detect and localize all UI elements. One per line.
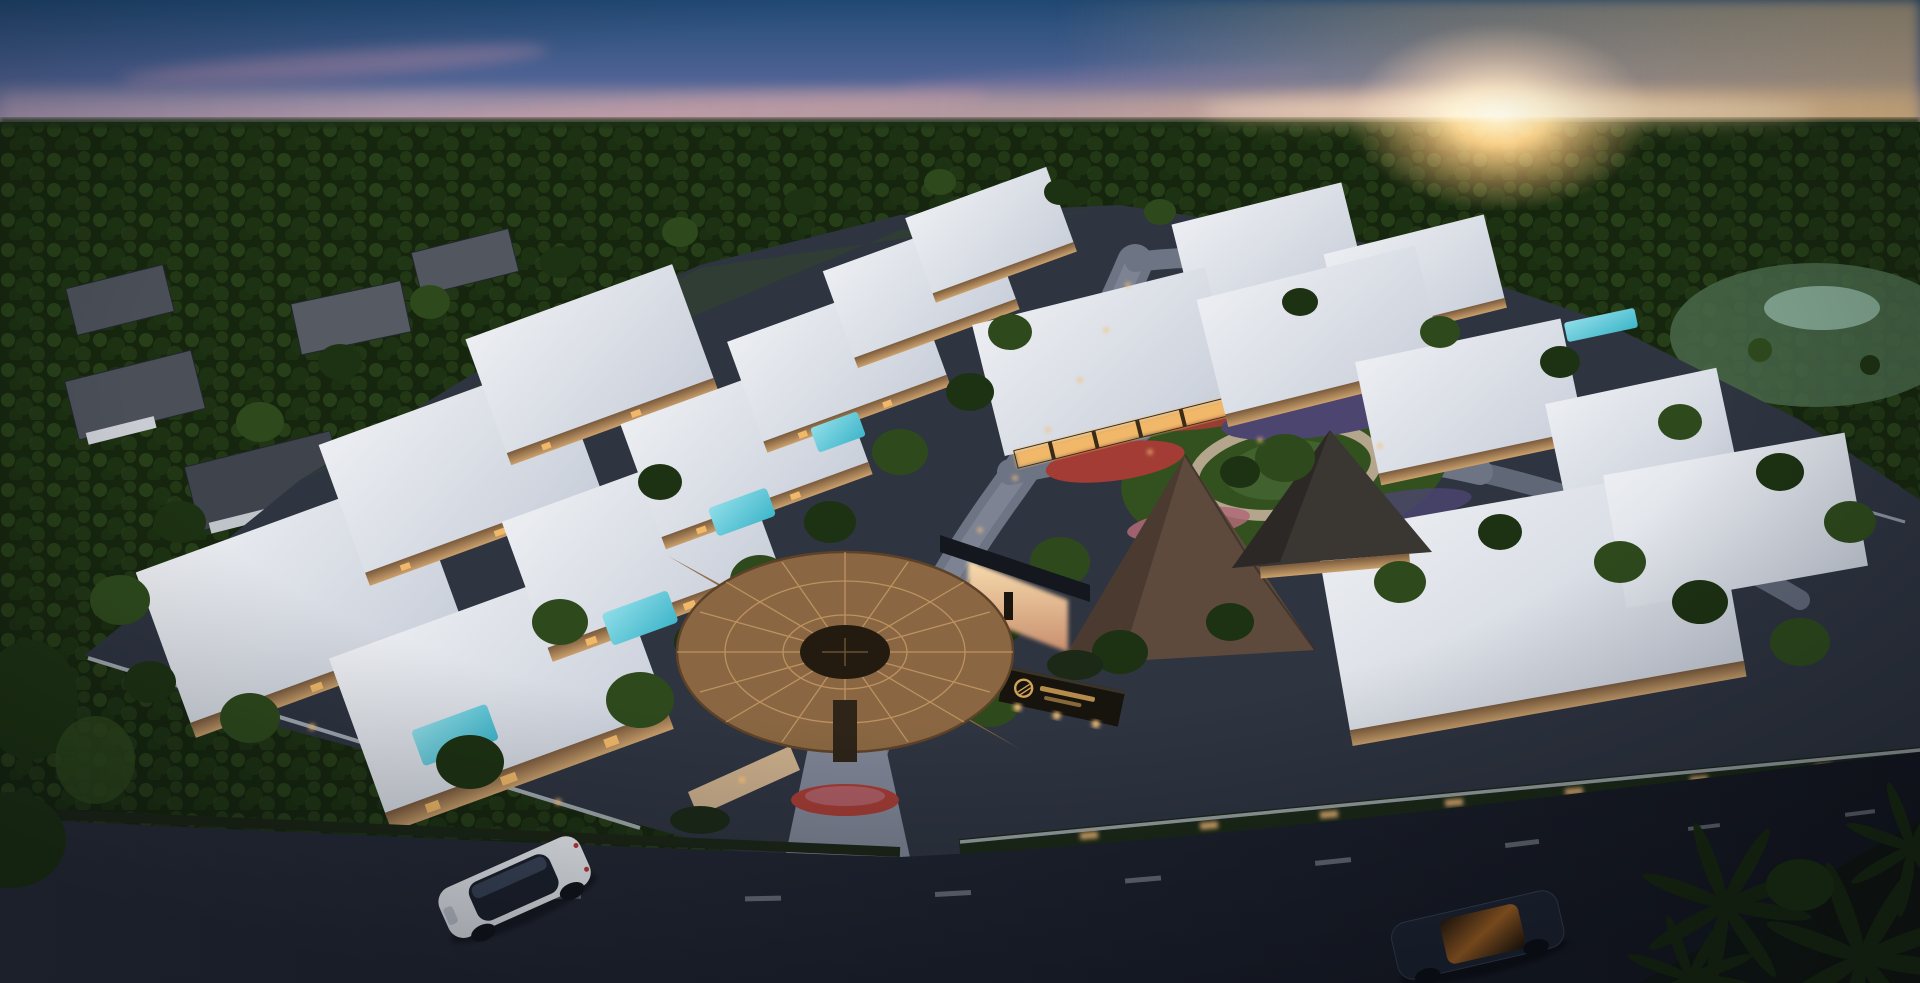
flower-median-highlight <box>805 786 885 806</box>
rendering-canvas <box>0 0 1920 983</box>
canopy-pillars <box>833 700 857 762</box>
treeline-horizon <box>0 118 1920 128</box>
gate-pillar <box>1004 592 1013 620</box>
gatehouse-hedge <box>1047 650 1103 680</box>
estate-scene <box>0 0 1920 983</box>
foreground-tree <box>1766 859 1834 911</box>
